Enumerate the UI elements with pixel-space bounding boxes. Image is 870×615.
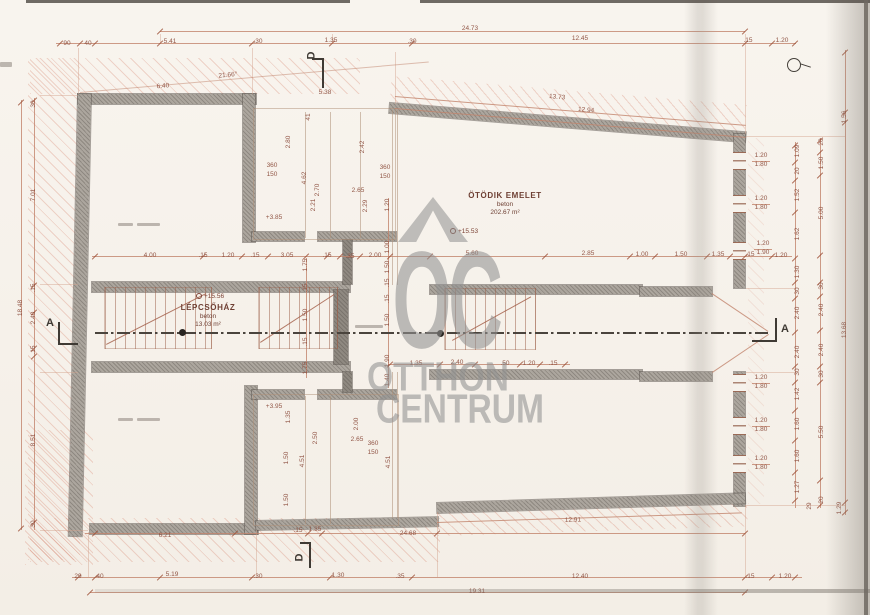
dim-label: 4.62 [302,172,309,185]
dim-label: 13.73 [549,94,566,102]
wall [343,240,352,284]
orientation-circle-icon [787,58,801,72]
dim-label: 1.00 [385,241,392,254]
terrace-divider-line [330,112,331,238]
dim-label: 150 [368,450,379,457]
section-marker-bracket [775,318,777,342]
section-marker-d-bottom: D [294,554,305,562]
dim-label: 4.00 [144,253,157,260]
dim-label: .30 [407,39,416,46]
dim-label: 20 [819,138,826,145]
room-material: beton [468,201,542,208]
dim-label: 2.21 [311,199,318,212]
dim-label: 360 [267,163,278,170]
dim-label: 30 [819,282,826,289]
dim-label: .15 [385,278,392,287]
dim-label: 1.80 [755,384,768,391]
dim-label: 1.60 [795,418,802,431]
dim-label: 1.35 [309,527,322,534]
dim-label: .30 [253,39,262,46]
dim-label: 2.85 [582,251,595,258]
dim-label: 150 [267,172,278,179]
scan-edge [95,589,870,593]
dim-label: 5.50 [819,426,826,439]
dim-label: 12.91 [565,517,581,524]
dim-label: 40 [84,41,91,48]
dim-label: .15 [293,528,302,535]
section-marker-bracket [58,343,78,345]
dim-label: 2.40 [795,346,802,359]
dim-label: 1.20 [755,196,768,203]
dim-label: 150 [380,174,391,181]
extension-line [745,505,746,577]
dim-label: 1.80 [755,427,768,434]
dim-label: .15 [743,38,752,45]
dim-label: 30 [31,100,38,107]
section-marker-bracket [300,542,310,544]
dim-label: 30 [795,287,802,294]
illegible-note [355,325,383,328]
dim-label: 2.40 [795,307,802,320]
dim-label: 8.51 [31,434,38,447]
illegible-note [137,223,160,226]
window-opening [733,152,746,170]
extension-line [40,372,78,373]
dim-label: 12.45 [572,36,588,43]
dim-label: 4.51 [300,455,307,468]
dimension-line [820,138,821,508]
dim-label: 1.50 [303,309,310,322]
floorplan-canvas: A A D D ÖTÖDIK EMELET beton 202.67 m² +1… [0,0,870,615]
dim-label: 20 [819,496,826,503]
extension-line [252,48,253,94]
section-marker-a-right: A [781,324,789,335]
window-opening [733,455,746,473]
dim-label: +3.85 [266,215,282,222]
dim-label: 1.80 [755,465,768,472]
dim-label: 2.40 [31,312,38,325]
dim-label: 7.01 [31,189,38,202]
dim-label: 5.38 [319,90,332,97]
dim-label: 5.41 [164,39,177,46]
dim-label: 24.68 [400,531,416,538]
extension-line [40,530,88,531]
dim-label: 2.00 [354,418,361,431]
dim-label: 2.42 [360,141,367,154]
dim-label: 1.60 [795,450,802,463]
room-label-main: ÖTÖDIK EMELET beton 202.67 m² [468,191,542,216]
dim-label: 1.20 [755,418,768,425]
wall [734,372,745,506]
dim-label: 2.29 [363,200,370,213]
dim-label: 2.70 [315,184,322,197]
dim-label: 360 [380,165,391,172]
dim-label: 1.00 [636,252,649,259]
dim-label: 1.35 [325,38,338,45]
dim-label: 1.20 [755,456,768,463]
dim-label: 1.52 [795,189,802,202]
scan-edge [26,0,350,3]
dim-label: 6.40 [156,83,169,90]
dim-label: 1.30 [795,266,802,279]
dim-label: 1.50 [385,261,392,274]
dim-label: 2.00 [369,253,382,260]
room-area: 202.67 m² [468,209,542,216]
scan-edge [864,0,868,615]
tick-mark [18,525,24,531]
terrace-divider-line [330,396,331,524]
dim-label: .15 [198,253,207,260]
dim-label: 90 [63,41,70,48]
extension-line [40,95,78,96]
dim-label: 1.20 [779,574,792,581]
illegible-note [118,223,133,226]
dim-label: 1.80 [755,205,768,212]
dim-label: .15 [250,253,259,260]
dim-label: .30 [253,574,262,581]
dim-label: .15 [745,252,754,259]
scan-edge [420,0,870,3]
dim-label: 1.30 [332,573,345,580]
dim-label: 1.09 [795,145,802,158]
dim-label: 5.19 [166,572,179,579]
window-opening [733,417,746,435]
dim-label: .15 [322,253,331,260]
wall [343,372,352,392]
dim-label: 1.20 [523,361,536,368]
dim-label: .15 [303,337,310,346]
dim-label: 12.94 [578,107,595,115]
dim-label: 1.20 [385,199,392,212]
dim-label: 40 [96,574,103,581]
dim-label: 1.20 [222,253,235,260]
extension-line [78,48,79,94]
extension-line [746,372,795,373]
dim-label: 30 [31,520,38,527]
dim-label: 30 [819,370,826,377]
section-marker-bracket [752,340,776,342]
dim-label: .15 [745,574,754,581]
dim-label: .15 [548,361,557,368]
dim-label: .35 [395,574,404,581]
dim-label: 1.90 [757,250,770,257]
dim-label: 1.20 [755,153,768,160]
window-opening [733,374,746,392]
illegible-note [137,418,160,421]
dim-label: .15 [385,294,392,303]
room-name: ÖTÖDIK EMELET [468,191,542,200]
dim-label: 1.20 [776,38,789,45]
dim-label: 2.40 [819,344,826,357]
dim-label: 1.80 [755,162,768,169]
dim-label: 2.65 [351,437,364,444]
extension-line [256,530,257,577]
dim-label: .15 [303,283,310,292]
window-opening [733,195,746,213]
extension-line [88,532,89,577]
dim-label: 2.65 [352,188,365,195]
room-area: 13.03 m² [181,321,236,328]
dimension-line [160,31,745,32]
orientation-arrow-icon [800,63,811,68]
illegible-note [118,418,133,421]
dim-label: 41 [306,113,313,120]
dim-label: 30 [795,368,802,375]
scan-speck [0,62,12,67]
dim-label: .15 [31,283,38,292]
dim-label: 18.48 [18,300,25,316]
section-marker-bracket [309,542,311,568]
dim-label: 1.50 [284,494,291,507]
dim-label: 12.40 [572,574,588,581]
section-dot [179,329,186,336]
extension-line [746,288,795,289]
terrace-divider-line [360,112,361,238]
dim-label: 1.75 [303,362,310,375]
scan-fold [684,0,718,615]
dim-label: 1.50 [385,314,392,327]
dim-label: 6.21 [159,533,172,540]
section-marker-d-top: D [306,52,317,60]
dim-label: 1.20 [775,253,788,260]
dim-label: 1.20 [757,241,770,248]
dim-label: 1.27 [795,481,802,494]
dim-label: +3.95 [266,404,282,411]
dim-label: 2.50 [313,432,320,445]
dim-label: 2.40 [819,304,826,317]
dim-label: 1.50 [819,157,826,170]
dim-label: 29 [807,502,814,509]
room-name: LÉPCSŐHÁZ [181,303,236,312]
wall [78,94,256,104]
dim-label: 360 [368,441,379,448]
dim-label: 24.73 [462,26,478,33]
room-label-stairwell: LÉPCSŐHÁZ beton 13.03 m² [181,303,236,328]
dim-label: .35 [345,254,354,261]
dim-label: .15 [31,345,38,354]
dim-label: 1.75 [303,259,310,272]
level-mark: +15.56 [196,293,224,300]
dim-label: 2.80 [286,136,293,149]
dim-label: 4.51 [386,456,393,469]
dim-label: 20 [795,167,802,174]
dim-label: 1.42 [795,388,802,401]
dim-label: 1.20 [755,375,768,382]
wall [92,362,350,372]
hatch-region [748,138,764,504]
room-material: beton [181,313,236,320]
dim-label: 1.62 [795,228,802,241]
dim-label: 3.05 [281,253,294,260]
section-marker-a-left: A [46,318,54,329]
dim-label: 1.50 [284,452,291,465]
extension-line [40,284,78,285]
dim-label: 1.35 [286,411,293,424]
section-marker-bracket [58,322,60,344]
extension-line [745,34,746,134]
dim-label: 29 [74,574,81,581]
watermark-centrum: CENTRUM [376,386,544,433]
section-marker-bracket [322,58,324,88]
tick-mark [792,40,798,46]
dim-label: 5.00 [819,207,826,220]
